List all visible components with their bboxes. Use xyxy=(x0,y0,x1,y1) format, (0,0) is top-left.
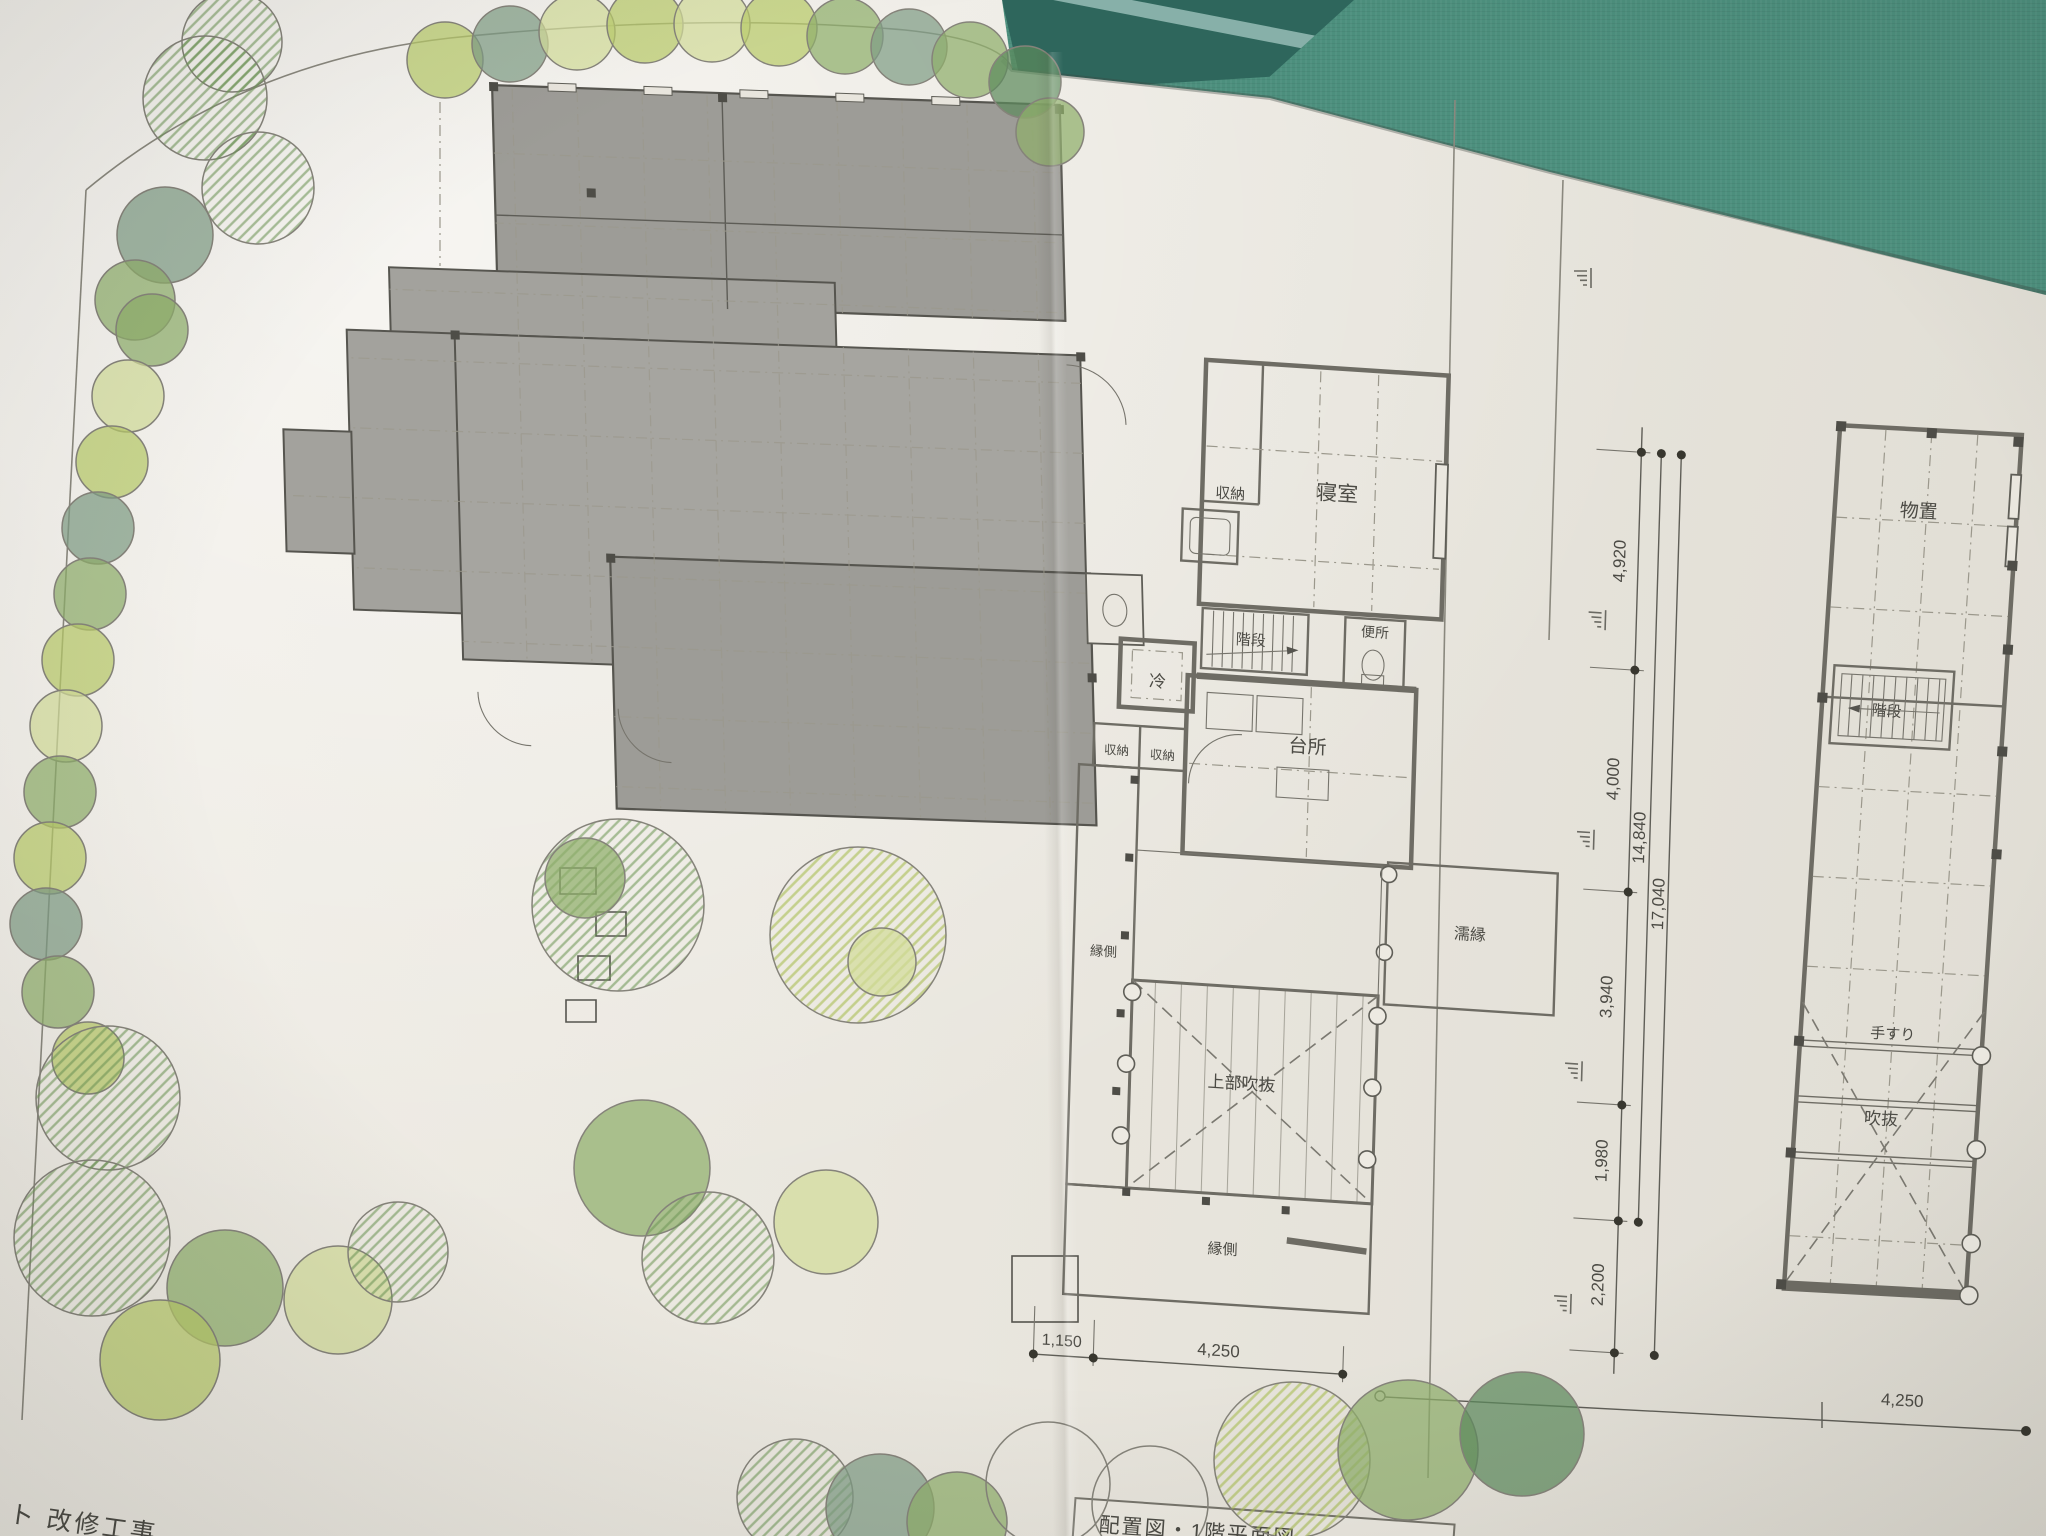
tree xyxy=(14,1160,170,1316)
project-label: ト 改修工事 xyxy=(7,1500,159,1536)
tree xyxy=(348,1202,448,1302)
right-dimension-chain: 4,920 4,000 3,940 1,980 2,200 14,840 17,… xyxy=(1552,423,1687,1376)
roof-porch xyxy=(283,429,354,553)
tree xyxy=(774,1170,878,1274)
lot-line-east xyxy=(1428,100,1455,1478)
room-label: 寝室 xyxy=(1316,481,1359,507)
lot-line-far-east xyxy=(1549,180,1563,640)
loft-module-lines xyxy=(1786,427,2020,1295)
room-label: 台所 xyxy=(1288,735,1327,759)
loft-post xyxy=(1959,1286,1978,1305)
tree xyxy=(24,756,96,828)
tree xyxy=(545,838,625,918)
tree xyxy=(116,294,188,366)
tree xyxy=(202,132,314,244)
first-floor-plan: 収納 寝室 階段 便所 冷 収納 収納 xyxy=(1029,350,1688,1402)
tree xyxy=(472,6,548,82)
tree xyxy=(10,888,82,960)
tree xyxy=(22,956,94,1028)
tree xyxy=(30,690,102,762)
handrail-lines xyxy=(1792,1040,1981,1168)
kitchen-module-lines xyxy=(1187,679,1414,863)
roof-lower-block xyxy=(610,557,1096,826)
dimension-text: 1,980 xyxy=(1592,1139,1612,1183)
dimension-text: 14,840 xyxy=(1629,811,1650,864)
dimension-text: 17,040 xyxy=(1648,877,1669,930)
room-label: 階段 xyxy=(1871,702,1902,721)
tree xyxy=(54,558,126,630)
loft-floor-plan: 物置 階段 手すり 吹抜 xyxy=(1776,421,2035,1305)
room-label: 手すり xyxy=(1870,1025,1916,1044)
bath-fixture xyxy=(1189,517,1230,556)
tree xyxy=(770,847,946,1023)
ground-mark xyxy=(1554,1293,1572,1314)
dimension-text: 4,920 xyxy=(1610,539,1630,583)
room-label: 冷 xyxy=(1149,672,1167,692)
bedroom-east-window xyxy=(1433,464,1448,559)
loft-post xyxy=(1972,1046,1991,1065)
deck-post xyxy=(1381,866,1397,883)
tree xyxy=(607,0,683,63)
ground-mark xyxy=(1577,829,1595,850)
photo-of-architectural-drawing: 収納 寝室 階段 便所 冷 収納 収納 xyxy=(0,0,2046,1536)
room-label: 吹抜 xyxy=(1864,1109,1899,1130)
tree xyxy=(62,492,134,564)
ground-mark xyxy=(1565,1060,1583,1081)
dimension-text: 2,200 xyxy=(1588,1263,1608,1307)
tree xyxy=(92,360,164,432)
tree xyxy=(539,0,615,70)
dimension-text: 4,250 xyxy=(1197,1340,1240,1362)
ground-mark xyxy=(1574,268,1591,288)
loft-post xyxy=(1962,1234,1981,1253)
loft-outer-walls xyxy=(1784,425,2022,1298)
ground-mark xyxy=(1588,609,1606,630)
room-label: 収納 xyxy=(1215,485,1245,504)
kitchen-door-swing xyxy=(1189,731,1242,786)
tree xyxy=(14,822,86,894)
tree xyxy=(1338,1380,1478,1520)
paper-edge-shadow xyxy=(1002,60,2046,293)
room-label: 便所 xyxy=(1361,623,1389,641)
loft-void-cross xyxy=(1784,1002,1984,1293)
tree xyxy=(741,0,817,66)
kitchen-counter-2 xyxy=(1256,696,1303,735)
tree xyxy=(42,624,114,696)
tree xyxy=(1460,1372,1584,1496)
loft-post xyxy=(1967,1140,1986,1159)
tree xyxy=(848,928,916,996)
tree xyxy=(100,1300,220,1420)
kitchen-walls xyxy=(1182,675,1416,868)
room-label: 縁側 xyxy=(1090,943,1117,960)
tree xyxy=(642,1192,774,1324)
tree xyxy=(76,426,148,498)
room-label: 収納 xyxy=(1104,743,1129,759)
loft-window xyxy=(2008,475,2021,519)
dimension-text: 4,000 xyxy=(1603,757,1623,801)
tree xyxy=(407,22,483,98)
room-label: 物置 xyxy=(1899,500,1938,524)
kitchen-counter-1 xyxy=(1206,692,1253,731)
drawing-linework: 収納 寝室 階段 便所 冷 収納 収納 xyxy=(0,0,2046,1536)
dimension-text: 3,940 xyxy=(1596,975,1616,1019)
deck-wall-stub xyxy=(1287,1240,1367,1251)
room-label: 縁側 xyxy=(1207,1240,1237,1259)
existing-house-roof-plan xyxy=(274,73,1148,827)
deck-post xyxy=(1376,944,1392,961)
tree xyxy=(36,1026,180,1170)
room-label: 濡縁 xyxy=(1454,925,1486,945)
room-label: 収納 xyxy=(1150,748,1175,764)
mid-deck xyxy=(1133,850,1382,996)
tree xyxy=(674,0,750,62)
closet-partition xyxy=(1202,360,1263,505)
dimension-text: 4,250 xyxy=(1881,1390,1924,1411)
room-label: 階段 xyxy=(1236,631,1266,650)
toilet-annex xyxy=(1086,573,1144,645)
closet-divider xyxy=(1139,726,1140,768)
